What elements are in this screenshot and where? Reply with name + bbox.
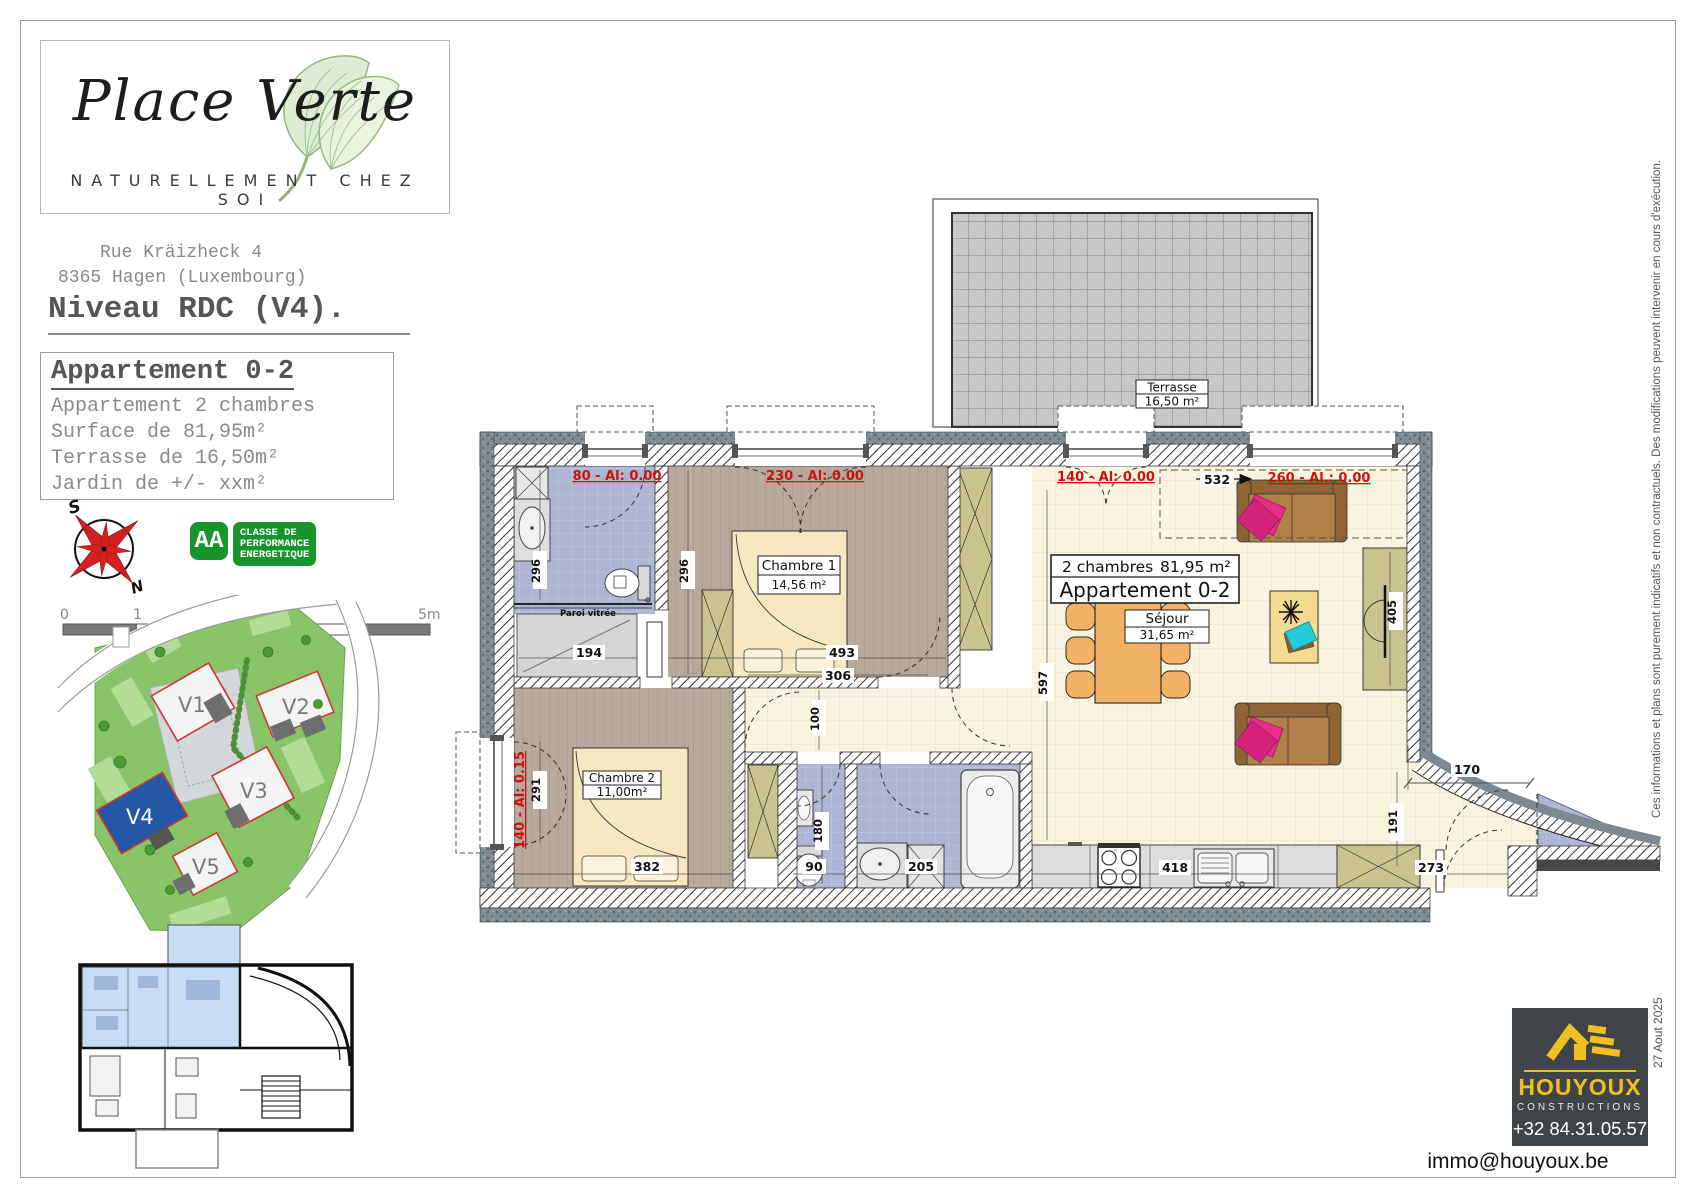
energy-label-line1: CLASSE DE [240,528,309,539]
wardrobe-chambre2 [748,765,778,858]
dim-493: 493 [829,645,855,660]
svg-text:Chambre 2: Chambre 2 [589,771,655,785]
energy-label: CLASSE DE PERFORMANCE ENERGETIQUE [233,522,316,566]
dim-291: 291 [529,778,543,802]
window-80 [577,406,653,466]
dim-306: 306 [825,668,851,683]
svg-text:14,56 m²: 14,56 m² [772,578,827,592]
level-title: Niveau RDC (V4). [48,292,410,335]
address-line-1: Rue Kräizheck 4 [100,243,262,263]
compass-rose: S N [50,490,165,605]
terrace-label: Terrasse 16,50 m² [1136,380,1208,409]
svg-text:": " [1114,849,1117,856]
chambre1-label: Chambre 1 14,56 m² [758,556,840,594]
window-260 [1242,406,1403,466]
plan-date: 27 Aout 2025 [1651,968,1665,1068]
dim-170: 170 [1454,762,1480,777]
apartment-surface: Surface de 81,95m² [51,421,267,444]
bed-chambre2 [573,748,688,886]
dim-597: 597 [1036,671,1050,695]
address-line-2: 8365 Hagen (Luxembourg) [58,268,306,288]
key-plan-stairs [262,1076,300,1118]
unit-count: 2 chambres [1062,558,1153,576]
site-lot-v4-label: V4 [126,805,154,829]
scale-tick-0: 0 [60,607,69,623]
dim-273: 273 [1418,860,1444,875]
dim-90: 90 [805,859,823,874]
svg-text:Chambre 1: Chambre 1 [762,558,836,574]
chambre2-label: Chambre 2 11,00m² [583,771,661,799]
window-140b [456,732,514,853]
svg-text:Séjour: Séjour [1146,611,1189,627]
dim-w230: 230 - Al: 0.00 [766,469,864,484]
builder-divider [1524,1070,1636,1072]
dim-w140b: 140 - Al: 0.15 [513,751,528,849]
disclaimer-text: Ces informations et plans sont purement … [1651,128,1663,818]
apartment-info-box: Appartement 0-2 Appartement 2 chambres S… [40,352,394,500]
floor-plan: " [430,190,1670,935]
energy-label-line3: ENERGETIQUE [240,550,309,561]
energy-label-line2: PERFORMANCE [240,539,309,550]
dim-w80: 80 - Al: 0.00 [573,469,662,484]
window-140 [1058,406,1154,466]
terrace [933,199,1318,427]
coffee-table [1270,591,1318,663]
dim-205: 205 [908,859,934,874]
logo-box: Place Verte NATURELLEMENT CHEZ SOI [40,40,450,214]
dim-382: 382 [634,859,660,874]
unit-area: 81,95 m² [1160,558,1231,576]
cooktop: " [1098,843,1140,887]
window-230 [727,406,874,466]
builder-logo-block: HOUYOUX CONSTRUCTIONS +32 84.31.05.57 [1512,1008,1648,1146]
energy-class-badge: AA CLASSE DE PERFORMANCE ENERGETIQUE [190,522,316,560]
dim-194: 194 [576,645,602,660]
dim-180: 180 [811,819,825,843]
apartment-terrace: Terrasse de 16,50m² [51,447,279,470]
dim-191: 191 [1386,810,1400,834]
unit-name: Appartement 0-2 [1059,578,1230,602]
svg-text:11,00m²: 11,00m² [597,785,648,799]
site-lot-v2-label: V2 [282,695,310,719]
left-graphics: 0 1 2 3 4 5m [40,595,440,1180]
builder-house-icon [1512,1010,1648,1070]
dim-296a: 296 [529,559,543,583]
door-leaf-shower [647,622,662,677]
logo-title: Place Verte [41,69,449,134]
logo-tagline: NATURELLEMENT CHEZ SOI [41,171,449,209]
builder-email: immo@houyoux.be [1388,1150,1648,1174]
svg-text:16,50 m²: 16,50 m² [1145,395,1200,409]
svg-text:31,65 m²: 31,65 m² [1140,628,1195,642]
dim-100: 100 [808,707,822,731]
builder-phone: +32 84.31.05.57 [1512,1118,1648,1140]
sink [1194,849,1274,887]
key-plan [80,925,352,1168]
builder-name: HOUYOUX [1512,1074,1648,1101]
builder-subtitle: CONSTRUCTIONS [1512,1102,1648,1113]
dim-w140: 140 - Al: 0.00 [1057,470,1155,485]
apartment-desc: Appartement 2 chambres [51,395,315,418]
sejour-label: Séjour 31,65 m² [1125,610,1209,643]
cupboard-sejour [958,468,992,650]
scale-tick-1: 1 [133,607,142,623]
plan-document-page: Place Verte NATURELLEMENT CHEZ SOI Rue K… [0,0,1696,1200]
cupboard-entry [1337,845,1420,888]
dim-w260: 260 - Al.: 0.00 [1268,471,1371,486]
compass-south-label: S [66,496,83,518]
site-lot-v1-label: V1 [178,693,206,717]
svg-text:Terrasse: Terrasse [1146,381,1197,395]
apartment-title: Appartement 0-2 [51,357,294,390]
sofa-top [1237,480,1347,542]
wardrobe-chambre1 [702,590,733,677]
dim-405: 405 [1385,600,1399,624]
site-lot-v5-label: V5 [192,855,220,879]
paroi-vitree-label: Paroi vitrée [560,608,616,619]
sofa-bottom [1235,703,1341,765]
dim-296b: 296 [677,559,691,583]
site-plan: V1 V2 V3 V4 V5 [58,595,379,932]
dim-532: 532 [1204,472,1230,487]
site-lot-v3-label: V3 [240,779,268,803]
dim-418: 418 [1162,860,1188,875]
energy-rating: AA [190,522,228,560]
unit-label: 2 chambres 81,95 m² Appartement 0-2 [1051,555,1239,603]
